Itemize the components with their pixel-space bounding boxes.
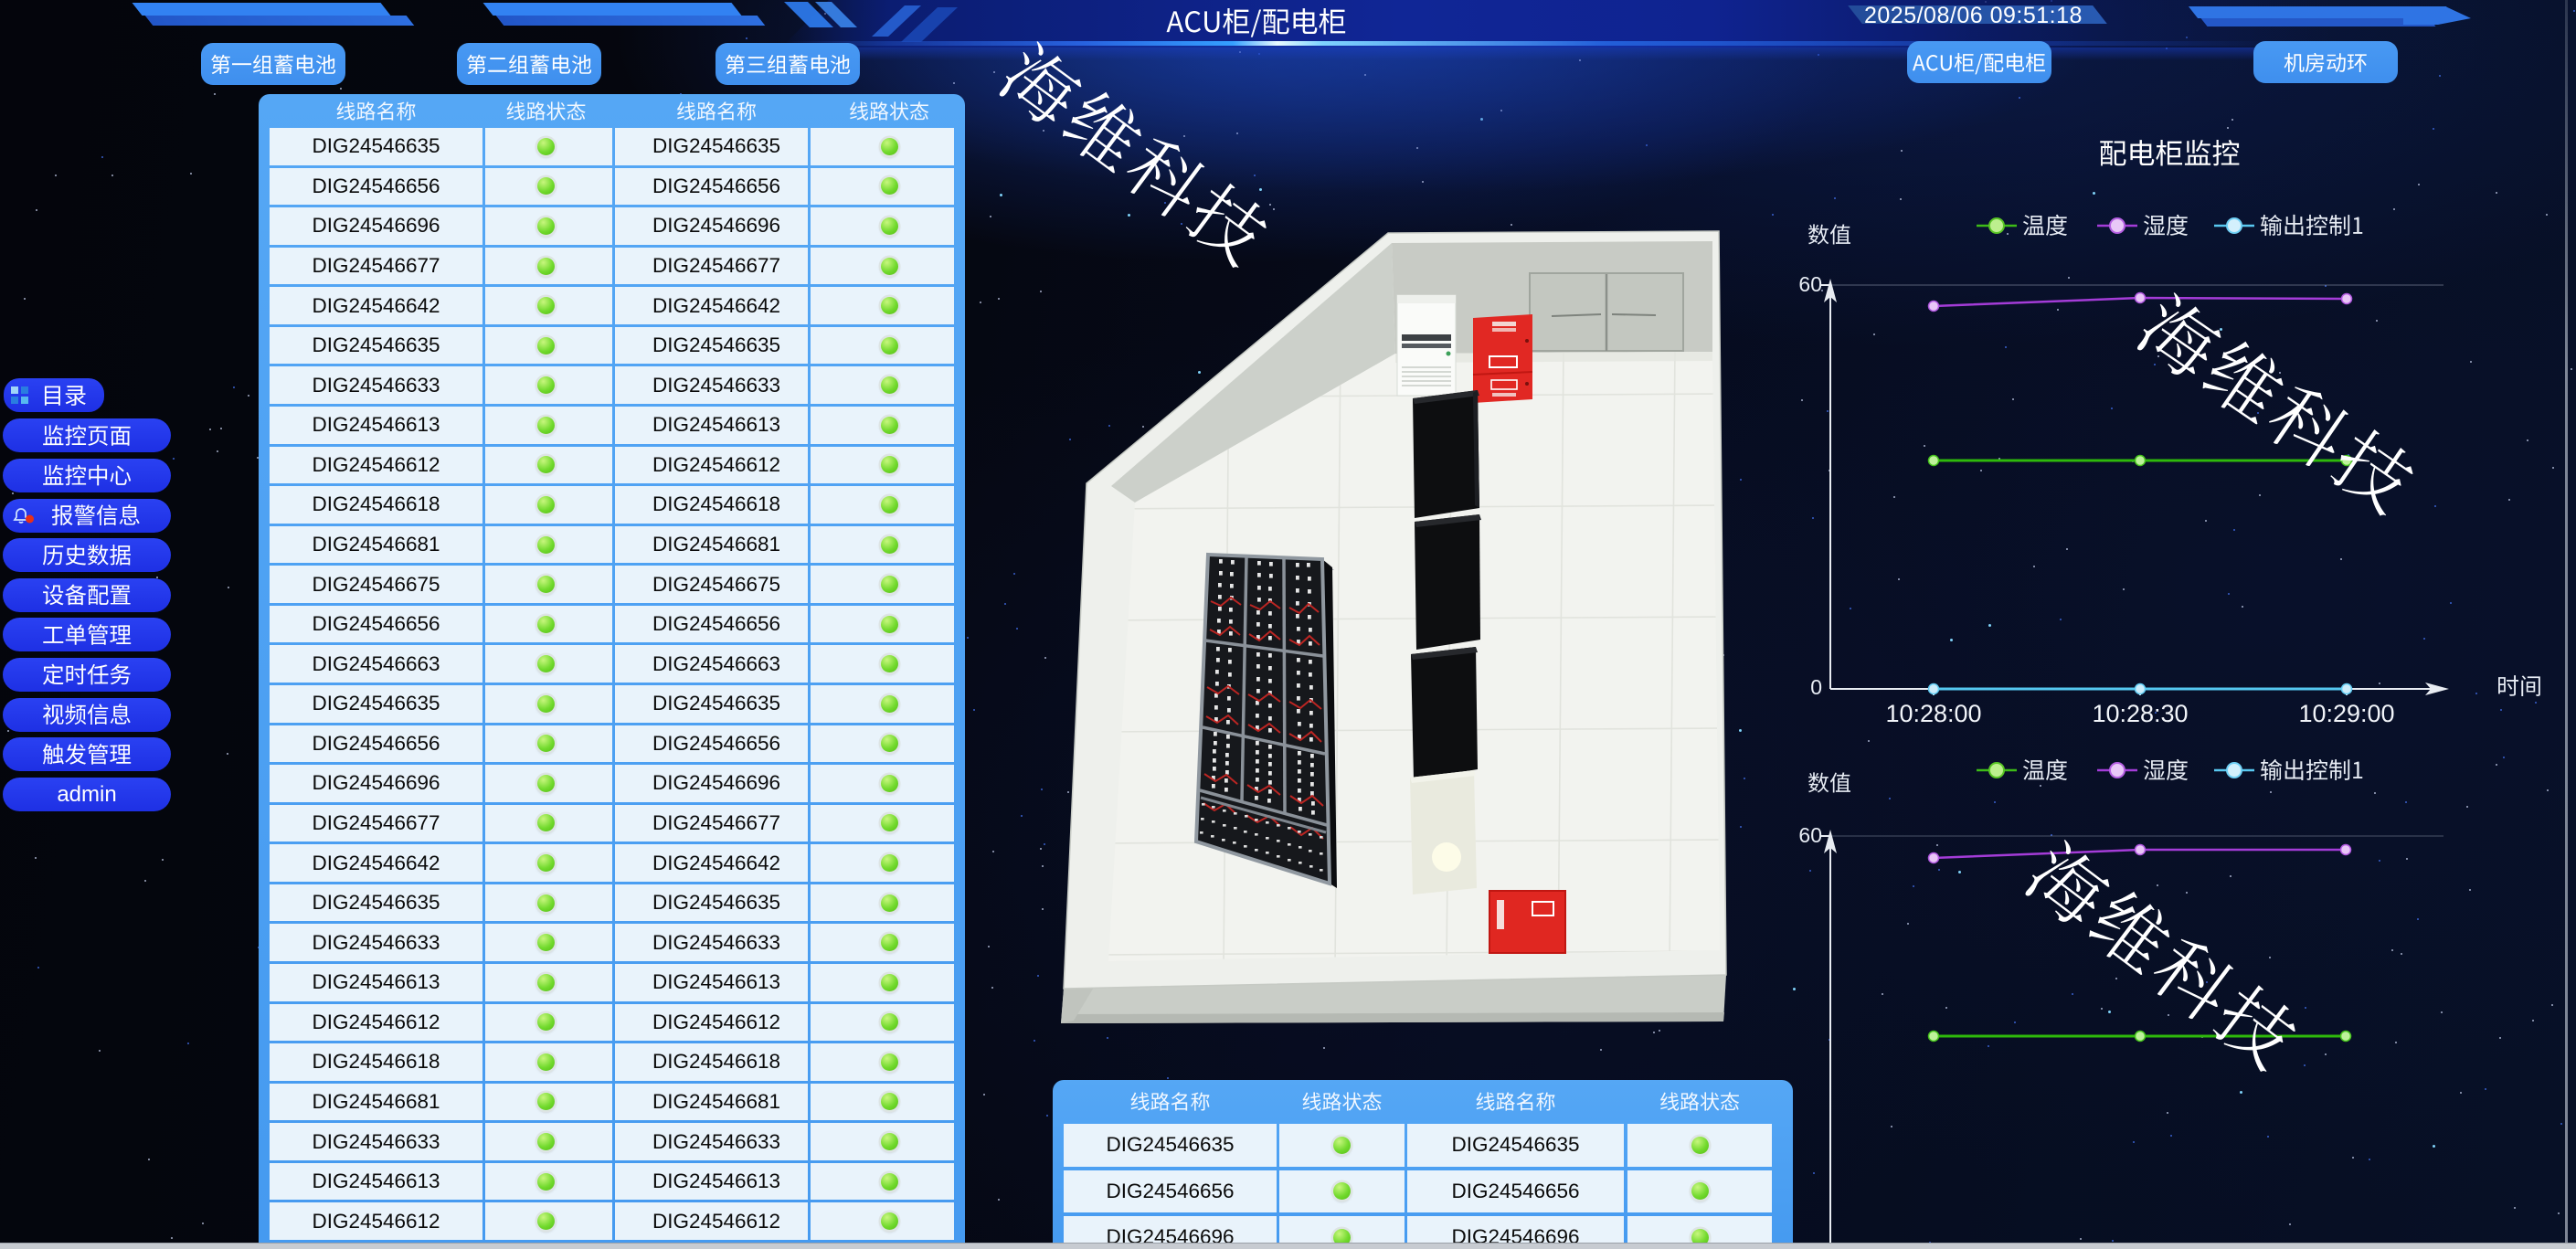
svg-text:10:29:00: 10:29:00: [2298, 700, 2394, 727]
svg-text:10:28:00: 10:28:00: [1885, 700, 1981, 727]
svg-text:0: 0: [1810, 675, 1822, 699]
svg-text:10:28:30: 10:28:30: [2092, 700, 2188, 727]
svg-text:60: 60: [1798, 272, 1822, 296]
svg-text:60: 60: [1798, 823, 1822, 847]
